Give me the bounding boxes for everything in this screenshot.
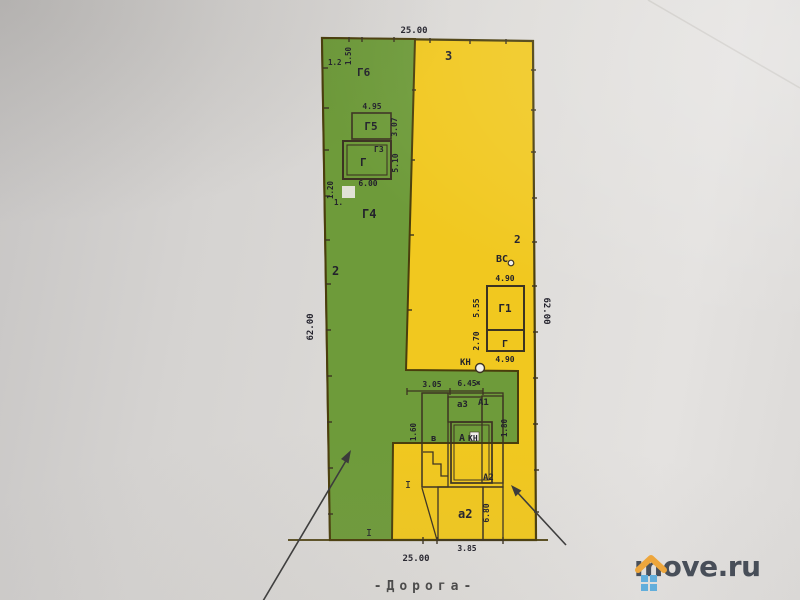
kn-well-symbol (476, 364, 485, 373)
dim-3-05: 3.05 (422, 380, 441, 389)
paper-fold-line (648, 0, 800, 88)
dim-4-90-bottom: 4.90 (495, 355, 514, 364)
dim-3-85: 3.85 (457, 544, 476, 553)
bottom-width-label: 25.00 (402, 554, 429, 564)
dim-4-90-top: 4.90 (495, 274, 514, 283)
building-g3-label: Г3 (374, 145, 384, 154)
building-a2-upper-label: А2 (483, 473, 494, 483)
dim-6-80: 6.80 (482, 503, 491, 522)
kn-inner-label: КН (468, 434, 478, 443)
vs-well-symbol (508, 260, 514, 266)
moveru-watermark: move.ru (634, 553, 761, 581)
dim-1-80: 1.80 (500, 418, 509, 437)
building-a2-lower-label: а2 (458, 507, 472, 521)
dim-1-20: 1.20 (326, 180, 335, 199)
building-a3-label: а3 (457, 400, 468, 410)
photographed-site-plan: 25.00 3 1.50 1.2 Г6 4.95 Г5 3.07 Г3 Г 5.… (0, 0, 800, 600)
zone-3-label: 3 (445, 49, 452, 63)
dim-1-60: 1.60 (409, 422, 418, 441)
survey-mark-i1: I (405, 480, 411, 491)
building-v-label: в (431, 434, 436, 444)
site-plan-drawing: 25.00 3 1.50 1.2 Г6 4.95 Г5 3.07 Г3 Г 5.… (0, 0, 800, 600)
dim-1-2: 1.2 (328, 58, 342, 67)
top-width-label: 25.00 (400, 26, 427, 36)
moveru-house-icon (634, 553, 670, 593)
dim-5-55: 5.55 (472, 298, 481, 317)
survey-mark-i2: I (366, 528, 372, 539)
zone-2-green-label: 2 (332, 264, 339, 278)
dim-1-50: 1.50 (344, 46, 353, 65)
building-g1-label: Г1 (498, 302, 512, 315)
vs-label: ВС (496, 254, 508, 265)
building-a1-label: А1 (478, 398, 489, 408)
edge-mark-1: 1. (334, 198, 343, 207)
house-window-icon (641, 575, 657, 591)
building-g-label: Г (360, 156, 367, 169)
building-a-label: А (459, 433, 465, 444)
left-height-label: 62.00 (306, 313, 316, 340)
kn-well-label: КН (460, 358, 471, 368)
building-g4-label: Г4 (362, 207, 376, 221)
dim-4-95: 4.95 (362, 102, 381, 111)
road-label: -Дорога- (374, 579, 477, 594)
building-g5-label: Г5 (364, 120, 377, 133)
right-height-label: 62.00 (541, 297, 551, 324)
house-roof-icon (638, 558, 664, 570)
dim-6-45: 6.45 (457, 379, 476, 388)
dim-6-00: 6.00 (358, 179, 377, 188)
white-patch-mark (342, 186, 355, 198)
building-g-small-label: Г (502, 339, 508, 350)
zone-2-yellow-label: 2 (514, 233, 521, 246)
dim-5-10: 5.10 (391, 153, 400, 172)
dim-2-70: 2.70 (472, 331, 481, 350)
building-g6-label: Г6 (357, 66, 371, 79)
dim-3-07: 3.07 (390, 117, 399, 136)
